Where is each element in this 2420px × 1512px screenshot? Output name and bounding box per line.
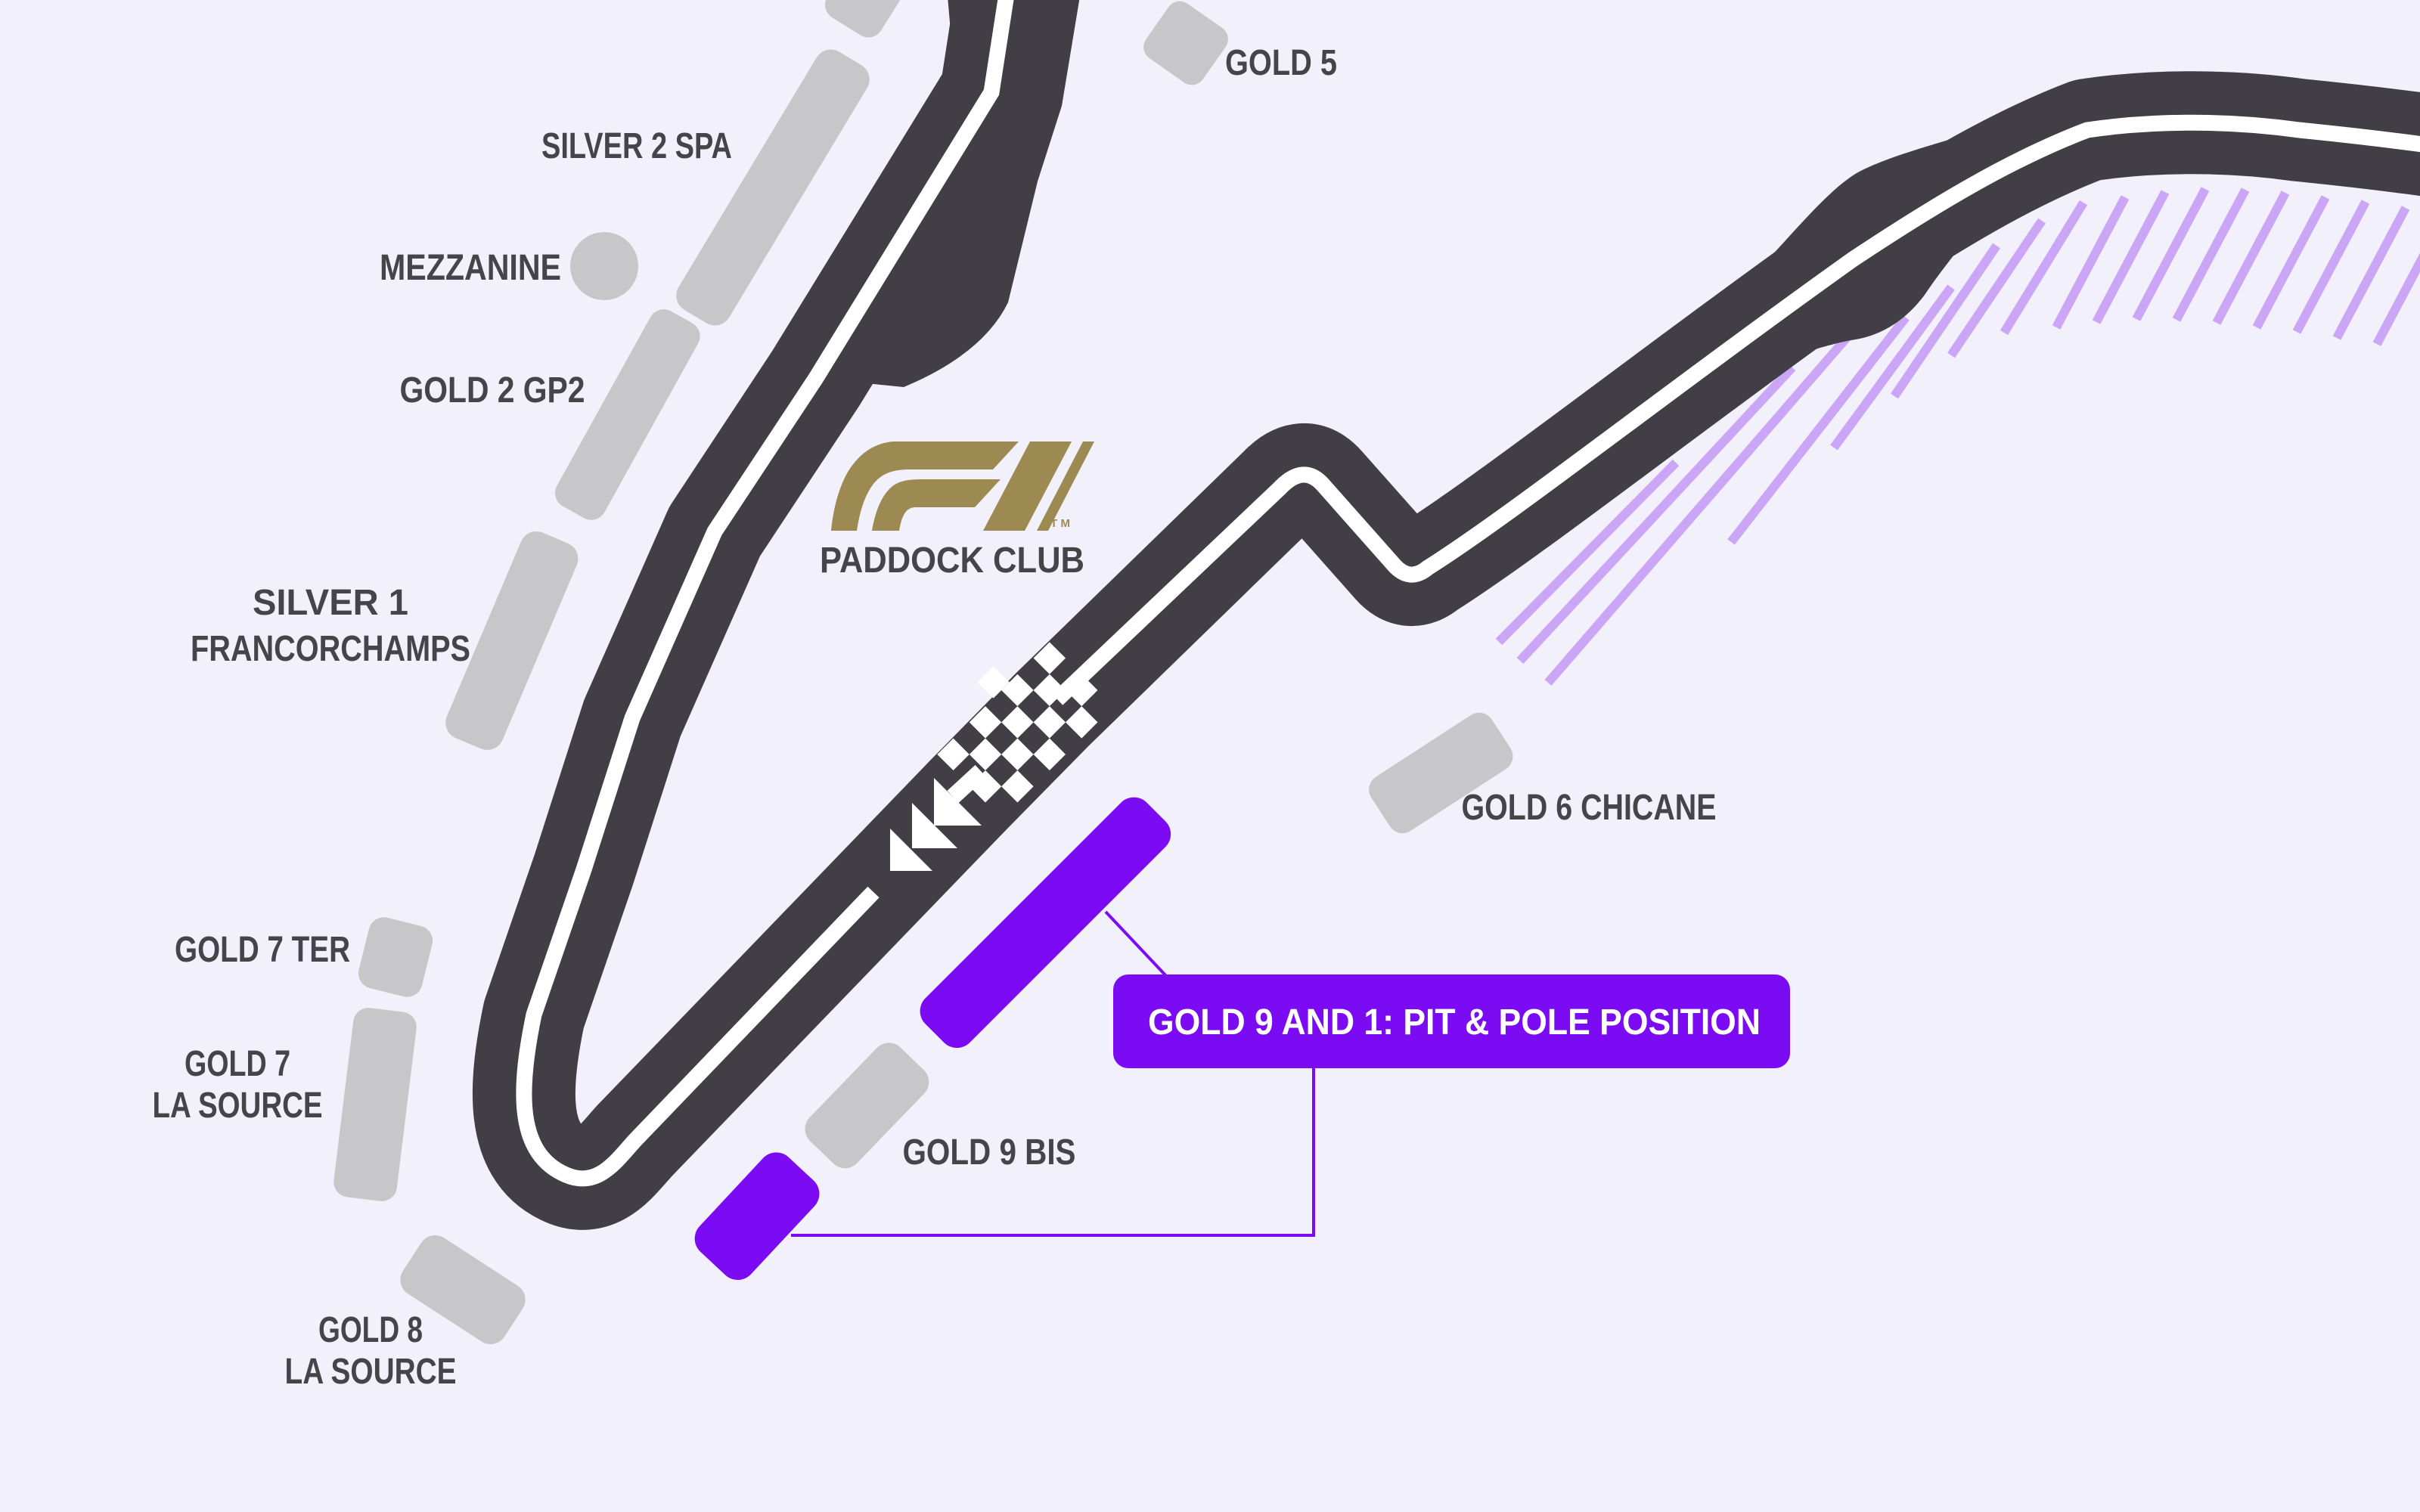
svg-text:LA SOURCE: LA SOURCE — [285, 1352, 457, 1392]
svg-text:PADDOCK CLUB: PADDOCK CLUB — [820, 541, 1084, 581]
svg-text:GOLD 7 TER: GOLD 7 TER — [175, 930, 350, 970]
svg-text:SILVER 2 SPA: SILVER 2 SPA — [541, 126, 732, 166]
svg-text:LA SOURCE: LA SOURCE — [153, 1086, 323, 1126]
svg-text:GOLD 9 AND 1: PIT & POLE POSIT: GOLD 9 AND 1: PIT & POLE POSITION — [1148, 1002, 1761, 1043]
svg-text:FRANCORCHAMPS: FRANCORCHAMPS — [191, 629, 470, 669]
svg-text:TM: TM — [1050, 517, 1070, 530]
svg-text:MEZZANINE: MEZZANINE — [380, 248, 561, 288]
svg-text:SILVER 1: SILVER 1 — [253, 583, 408, 623]
svg-text:GOLD 7: GOLD 7 — [185, 1044, 290, 1084]
svg-text:GOLD 2 GP2: GOLD 2 GP2 — [400, 370, 585, 411]
svg-text:GOLD 9 BIS: GOLD 9 BIS — [903, 1132, 1076, 1173]
svg-text:GOLD 5: GOLD 5 — [1225, 43, 1337, 83]
svg-text:GOLD 8: GOLD 8 — [318, 1310, 423, 1350]
svg-text:GOLD 6 CHICANE: GOLD 6 CHICANE — [1462, 788, 1717, 828]
